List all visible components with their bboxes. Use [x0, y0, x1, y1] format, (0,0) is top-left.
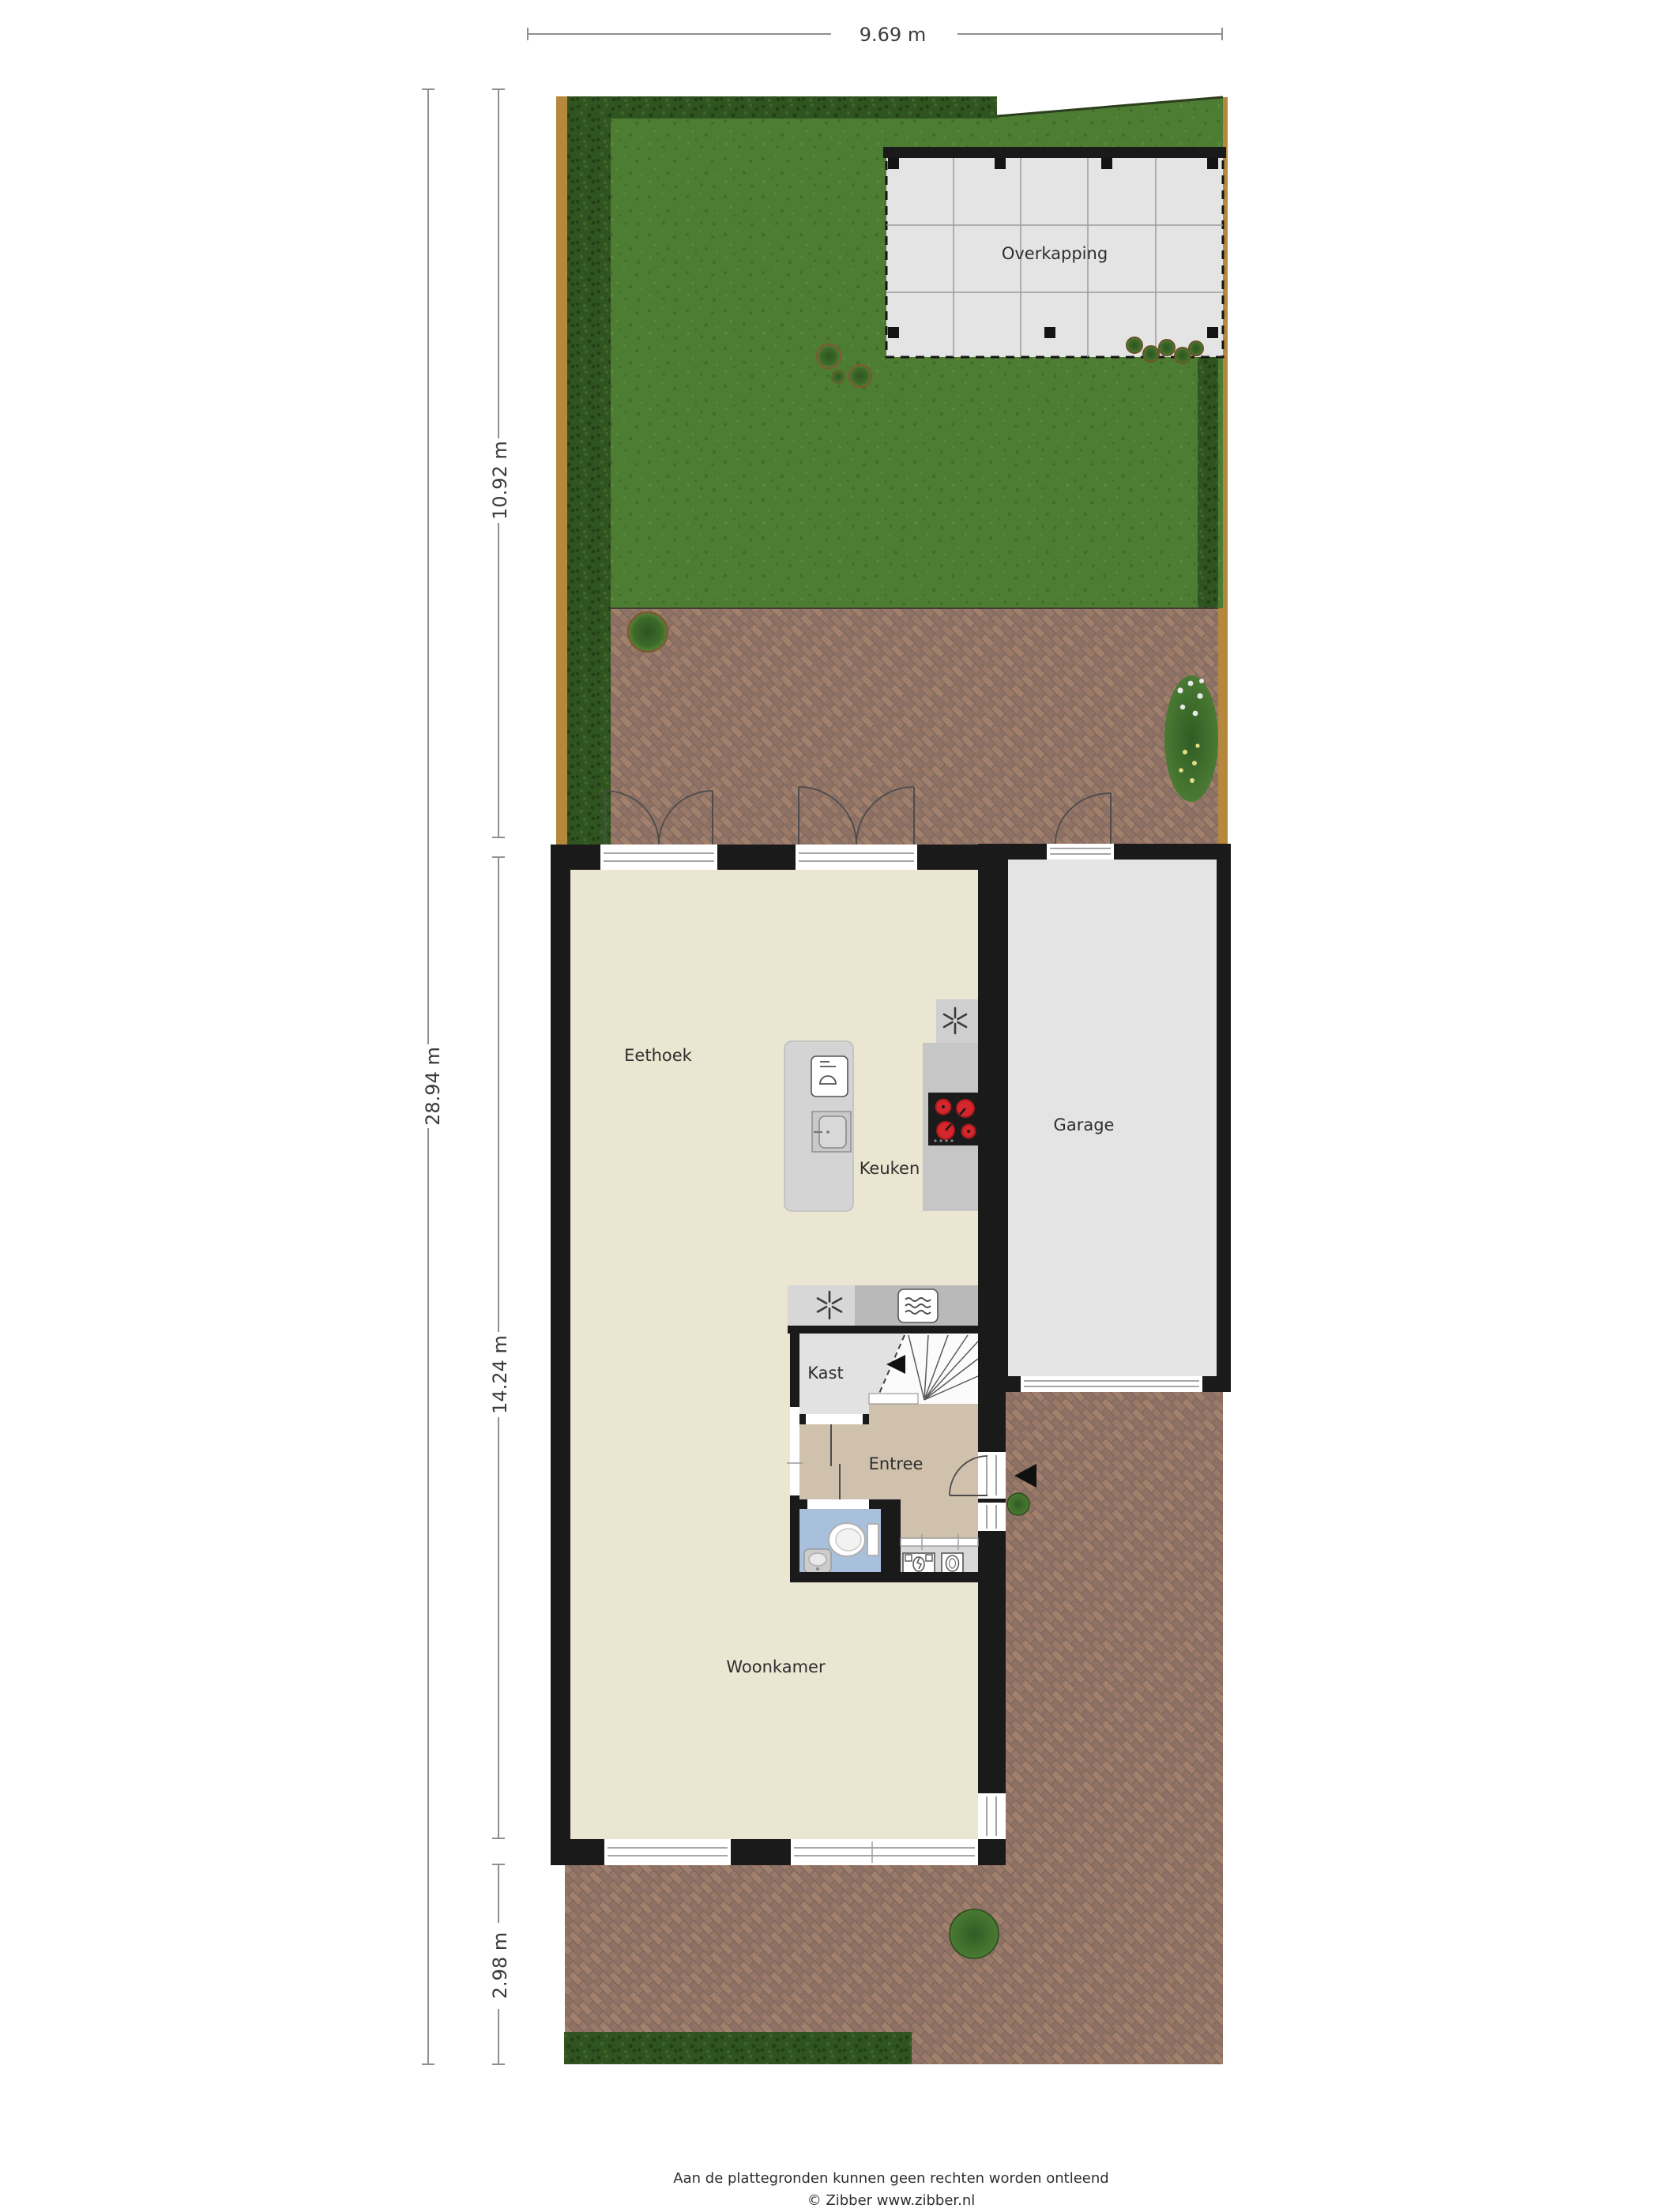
living-side-window [978, 1793, 1006, 1839]
tree-icon [628, 612, 668, 652]
fence-left [556, 96, 567, 845]
living-window-right [791, 1839, 978, 1865]
dimension-garden-depth: 10.92 m [489, 89, 511, 837]
cooktop-icon [928, 1093, 978, 1145]
bush-icon [950, 1909, 999, 1958]
room-label-overkapping: Overkapping [1002, 244, 1108, 263]
dimension-top-width: 9.69 m [528, 24, 1222, 46]
floorplan-drawing: 9.69 m 28.94 m 10.92 m 14.24 m 2.98 m [0, 0, 1659, 2212]
room-entree-floor [869, 1404, 978, 1424]
dimension-front-depth: 2.98 m [489, 1864, 511, 2064]
canopy: Overkapping [883, 147, 1226, 357]
footer: Aan de plattegronden kunnen geen rechten… [673, 2170, 1108, 2209]
canopy-back-wall [883, 147, 1226, 158]
room-label-entree: Entree [869, 1454, 924, 1473]
stair-landing [869, 1394, 918, 1404]
toilet-icon [829, 1523, 878, 1556]
shrub-icon [832, 371, 845, 383]
room-label-kast: Kast [807, 1364, 843, 1382]
dimension-house-depth: 14.24 m [489, 857, 511, 1838]
oven-icon [898, 1289, 938, 1322]
floorplan-page: 9.69 m 28.94 m 10.92 m 14.24 m 2.98 m [0, 0, 1659, 2212]
bush-icon [1007, 1493, 1029, 1515]
living-window-left [604, 1839, 731, 1865]
flower-bush-icon [1164, 675, 1218, 802]
hedge-top [567, 96, 997, 118]
dimension-label-top-width: 9.69 m [860, 24, 926, 46]
hedge-left [567, 96, 611, 845]
front-door-sidelight [978, 1503, 1006, 1531]
dimension-label-house-depth: 14.24 m [489, 1335, 511, 1414]
hedge-front [564, 2032, 912, 2064]
dimension-label-garden-depth: 10.92 m [489, 441, 511, 520]
room-label-eethoek: Eethoek [624, 1046, 693, 1065]
hand-basin-icon [804, 1549, 831, 1573]
dimension-label-front-depth: 2.98 m [489, 1932, 511, 1999]
boiler-icon [942, 1553, 963, 1574]
dishwasher-icon [811, 1056, 848, 1097]
room-label-keuken: Keuken [860, 1159, 920, 1178]
back-garden: Overkapping [556, 96, 1228, 845]
extractor-unit [936, 999, 978, 1043]
footer-credit: © Zibber www.zibber.nl [807, 2192, 976, 2209]
footer-disclaimer: Aan de plattegronden kunnen geen rechten… [673, 2170, 1108, 2187]
tree-icon [849, 365, 871, 387]
kitchen-counter-bottom-left [788, 1285, 855, 1326]
sink-icon [812, 1112, 851, 1152]
utility-fixtures [903, 1553, 963, 1574]
meter-box-icon [903, 1553, 935, 1574]
dimension-label-total-depth: 28.94 m [422, 1047, 444, 1126]
tree-icon [817, 344, 841, 368]
room-label-garage: Garage [1054, 1115, 1115, 1134]
garage-back-window [1021, 1376, 1202, 1392]
room-label-woonkamer: Woonkamer [726, 1657, 826, 1676]
dimension-total-depth: 28.94 m [422, 89, 444, 2064]
